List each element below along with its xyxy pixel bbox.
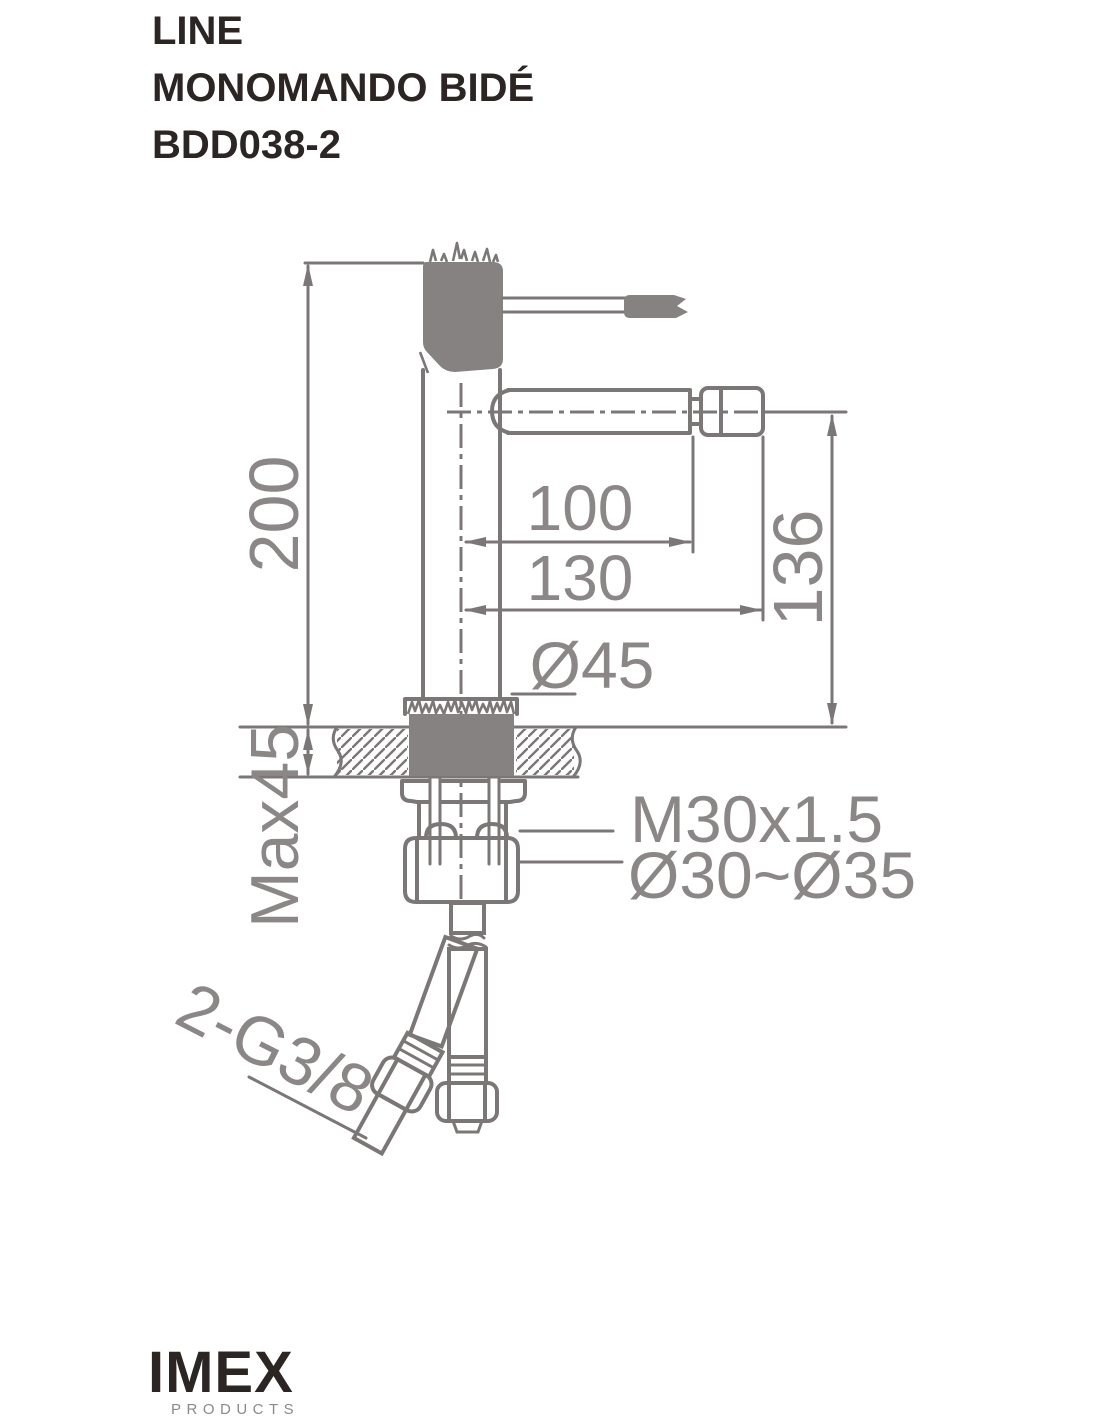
- lever-rod: [503, 298, 630, 312]
- label-inlet-hoses: 2-G3/8: [165, 968, 385, 1130]
- product-name: MONOMANDO BIDÉ: [152, 65, 534, 110]
- hose-angled-underlay: [407, 935, 480, 1049]
- shank-through-counter: [409, 714, 514, 776]
- dimension-136: 136: [759, 412, 846, 725]
- model-code: BDD038-2: [152, 123, 341, 167]
- title-block: LINE MONOMANDO BIDÉ BDD038-2: [152, 9, 534, 167]
- spec-sheet-page: LINE MONOMANDO BIDÉ BDD038-2: [0, 0, 1100, 1422]
- brand-tagline: PRODUCTS: [171, 1401, 299, 1418]
- brand-name: IMEX: [148, 1340, 294, 1405]
- lever-grip: [624, 295, 688, 318]
- countertop-section: [240, 714, 846, 777]
- hose-angled: [341, 926, 487, 1166]
- mounting-hardware: [402, 779, 525, 902]
- hose-vertical-collar: [449, 1057, 486, 1083]
- hose-vertical-collar-bands: [449, 1065, 486, 1074]
- counter-hatch-left: [337, 729, 408, 775]
- dim-spout-reach: 100: [527, 472, 634, 544]
- hose-vertical-nut-facets: [449, 1083, 485, 1121]
- label-hole-range: Ø30~Ø35: [518, 838, 916, 912]
- brand-logo: IMEX PRODUCTS: [148, 1340, 299, 1418]
- technical-drawing: LINE MONOMANDO BIDÉ BDD038-2: [0, 0, 1100, 1422]
- dimension-max45: Max45: [237, 724, 313, 928]
- label-inlets: 2-G3/8: [165, 968, 385, 1138]
- dim-base-diameter: Ø45: [530, 628, 655, 702]
- supply-hoses: [341, 903, 497, 1165]
- dim-counter-thickness: Max45: [237, 724, 313, 928]
- hose-angled-nut-facets: [378, 1059, 425, 1109]
- hose-vertical-nut: [437, 1083, 497, 1121]
- handle-cap: [423, 262, 503, 372]
- threaded-studs: [430, 779, 499, 864]
- dimension-o45: Ø45: [512, 628, 654, 702]
- dim-spout-height: 136: [759, 510, 837, 627]
- label-mounting-hole-range: Ø30~Ø35: [628, 838, 916, 912]
- dim-total-height: 200: [235, 456, 313, 573]
- series-name: LINE: [152, 9, 243, 53]
- dimension-200: 200: [235, 263, 423, 726]
- hose-vertical-braid-upper: [451, 903, 484, 933]
- counter-hatch-right: [516, 729, 574, 775]
- dim-total-reach: 130: [527, 542, 634, 614]
